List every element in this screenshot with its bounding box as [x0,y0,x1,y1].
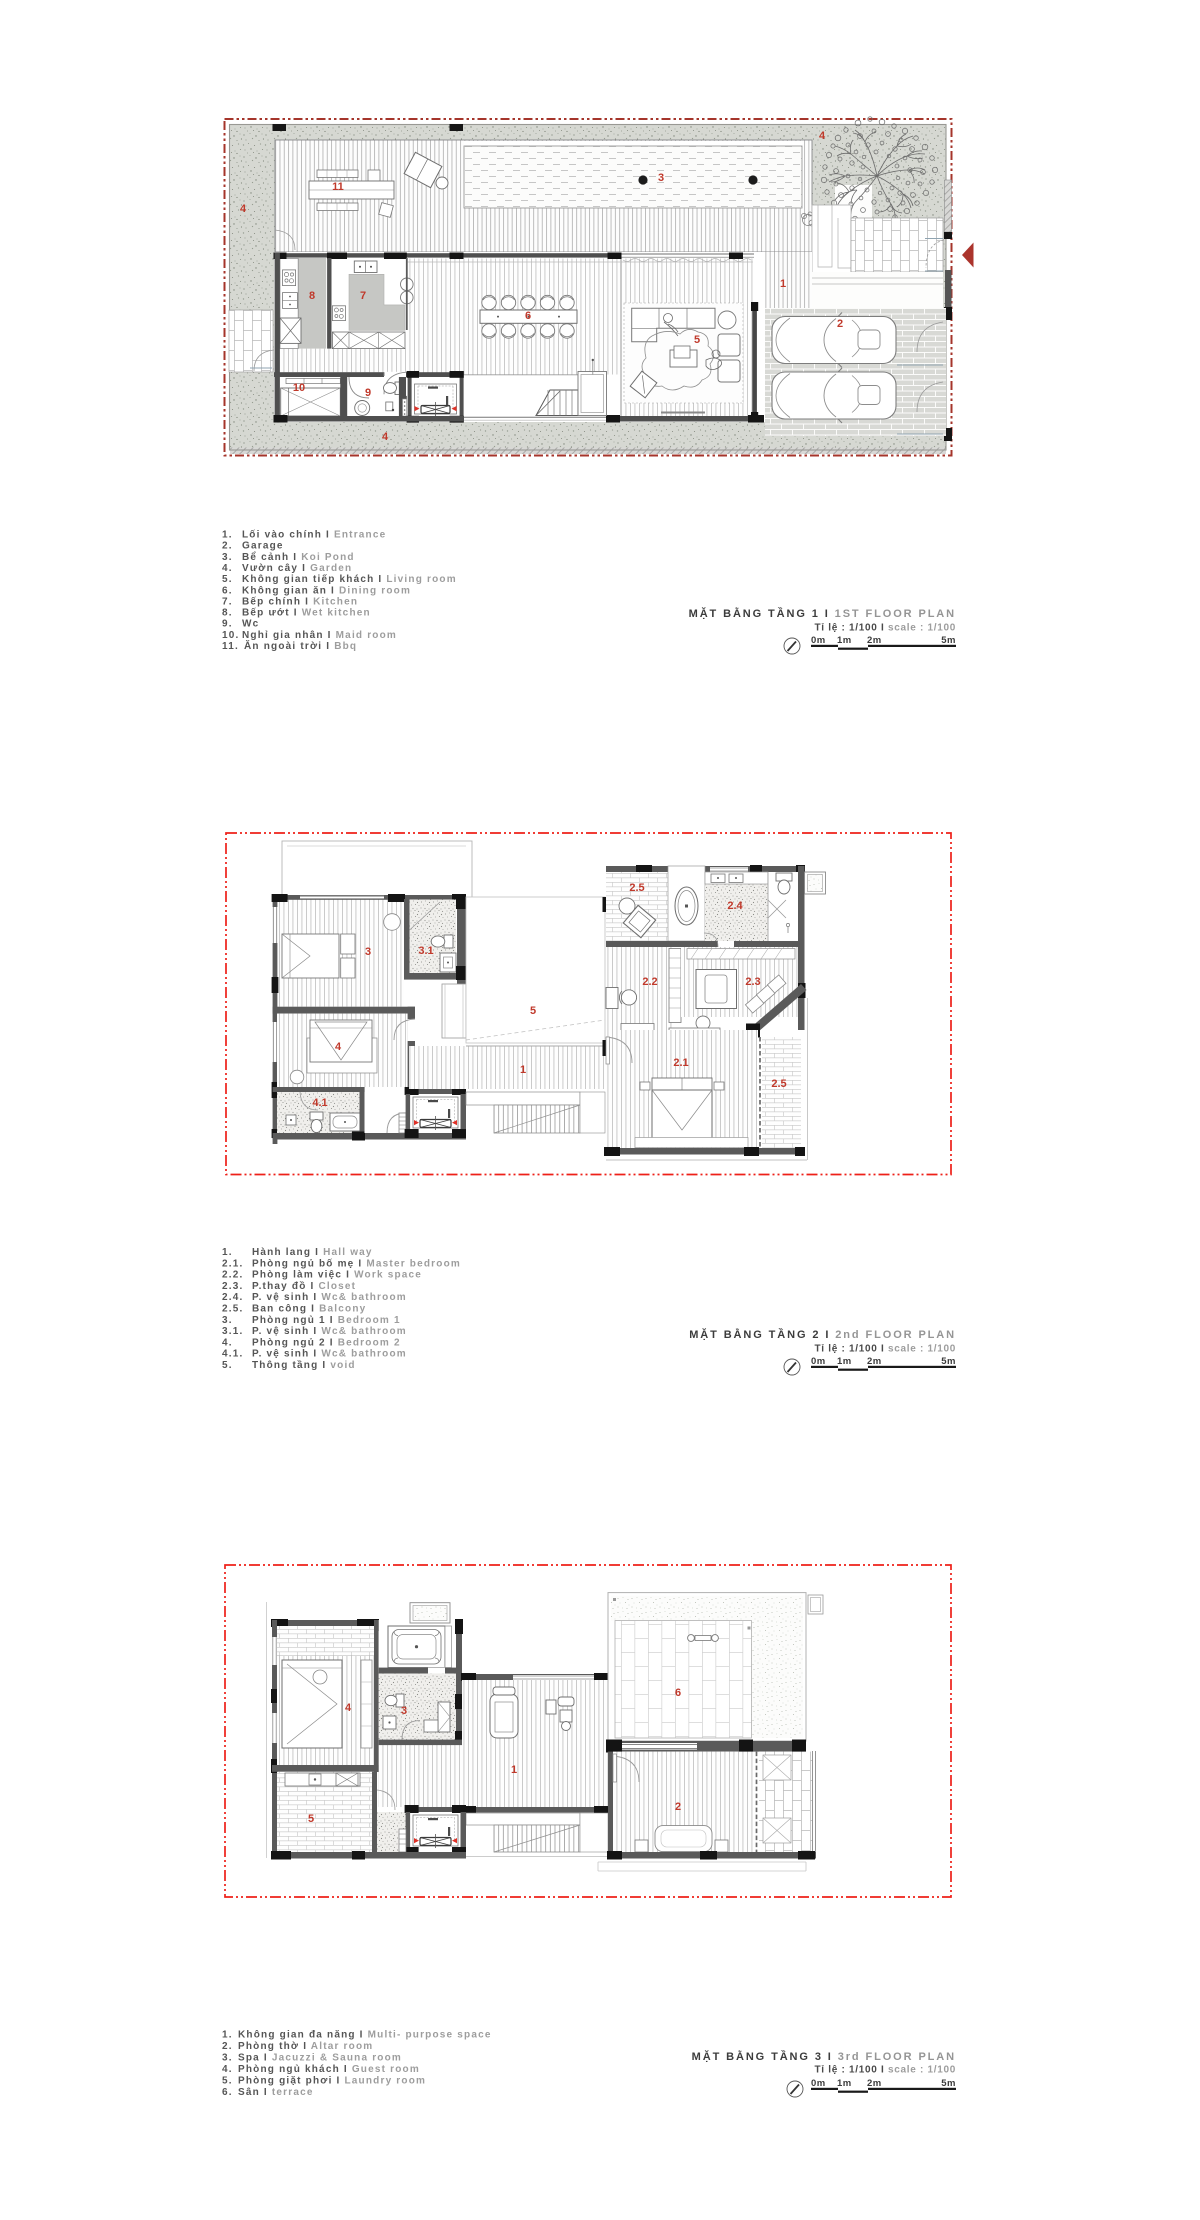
svg-text:2m: 2m [867,635,882,646]
svg-text:P. vệ sinh I Wc& bathroom: P. vệ sinh I Wc& bathroom [252,1349,407,1360]
svg-text:5m: 5m [941,1356,956,1367]
svg-text:Vườn cây I Garden: Vườn cây I Garden [242,563,352,574]
svg-text:3.: 3. [222,2053,233,2064]
svg-text:9: 9 [365,387,371,399]
svg-text:Bếp ướt I Wet kitchen: Bếp ướt I Wet kitchen [242,607,371,619]
svg-text:Không gian tiếp khách I Living: Không gian tiếp khách I Living room [242,573,457,585]
svg-text:MẶT BẰNG TẦNG 3 I 3rd FLOOR PL: MẶT BẰNG TẦNG 3 I 3rd FLOOR PLAN [692,2050,956,2063]
svg-text:3: 3 [401,1705,407,1717]
svg-text:8: 8 [309,290,315,302]
svg-text:6.: 6. [222,2087,233,2098]
svg-text:2.2: 2.2 [642,976,657,988]
svg-text:Phòng làm việc I Work space: Phòng làm việc I Work space [252,1270,422,1281]
svg-text:Garage: Garage [242,541,284,552]
svg-text:3.1: 3.1 [418,945,433,957]
svg-text:5.: 5. [222,574,233,585]
svg-text:5.: 5. [222,2076,233,2087]
svg-text:4.1: 4.1 [312,1097,327,1109]
svg-text:Phòng thờ I Altar room: Phòng thờ I Altar room [238,2041,373,2052]
svg-text:2.1: 2.1 [673,1057,688,1069]
svg-text:Wc: Wc [242,619,259,630]
svg-text:2m: 2m [867,2078,882,2089]
svg-text:2m: 2m [867,1356,882,1367]
svg-text:2: 2 [837,318,843,330]
svg-text:Tỉ lệ : 1/100 I scale : 1/100: Tỉ lệ : 1/100 I scale : 1/100 [815,623,957,634]
svg-text:1m: 1m [837,635,852,646]
svg-text:Ăn ngoài trời I Bbq: Ăn ngoài trời I Bbq [244,639,357,652]
svg-text:6: 6 [525,310,531,322]
svg-text:2.: 2. [222,2041,233,2052]
svg-text:3.: 3. [222,1315,233,1326]
svg-text:2.3.: 2.3. [222,1281,243,1292]
svg-text:5.: 5. [222,1360,233,1371]
svg-text:Sân I terrace: Sân I terrace [238,2087,314,2098]
svg-text:1.: 1. [222,1247,233,1258]
svg-text:1: 1 [780,278,786,290]
svg-text:4: 4 [382,431,389,443]
svg-text:7.: 7. [222,596,233,607]
svg-text:2.4: 2.4 [727,900,743,912]
svg-text:4.: 4. [222,2064,233,2075]
svg-text:2.5.: 2.5. [222,1304,243,1315]
svg-text:4: 4 [335,1041,342,1053]
svg-text:2.5: 2.5 [629,882,644,894]
svg-text:2: 2 [675,1801,681,1813]
svg-text:Tỉ lệ : 1/100 I scale : 1/100: Tỉ lệ : 1/100 I scale : 1/100 [815,2065,957,2076]
svg-text:6: 6 [675,1687,681,1699]
svg-text:10.: 10. [222,630,240,641]
svg-text:5m: 5m [941,2078,956,2089]
svg-text:3.: 3. [222,552,233,563]
svg-text:Không gian đa năng I Multi- pu: Không gian đa năng I Multi- purpose spac… [238,2030,492,2041]
svg-text:3: 3 [365,946,371,958]
svg-text:P.thay đồ I Closet: P.thay đồ I Closet [252,1280,356,1292]
svg-text:1.: 1. [222,530,233,541]
svg-text:Ban công I Balcony: Ban công I Balcony [252,1304,366,1315]
svg-text:Phòng ngủ khách I Guest room: Phòng ngủ khách I Guest room [238,2064,420,2075]
svg-text:2.2.: 2.2. [222,1270,243,1281]
svg-text:Hành lang I Hall way: Hành lang I Hall way [252,1247,373,1258]
svg-text:0m: 0m [811,2078,826,2089]
svg-text:MẶT BẰNG TẦNG 2 I 2nd FLOOR PL: MẶT BẰNG TẦNG 2 I 2nd FLOOR PLAN [689,1328,956,1341]
svg-text:4: 4 [819,130,826,142]
svg-text:Thông tầng I void: Thông tầng I void [252,1359,356,1371]
svg-text:Phòng ngủ bố mẹ I Master bedro: Phòng ngủ bố mẹ I Master bedroom [252,1257,461,1269]
svg-text:P. vệ sinh I Wc& bathroom: P. vệ sinh I Wc& bathroom [252,1292,407,1303]
svg-text:4.: 4. [222,1337,233,1348]
svg-text:7: 7 [360,290,366,302]
svg-text:8.: 8. [222,608,233,619]
svg-text:2.: 2. [222,541,233,552]
svg-text:2.5: 2.5 [771,1078,786,1090]
svg-text:Phòng giặt phơi I Laundry room: Phòng giặt phơi I Laundry room [238,2076,426,2087]
svg-text:1: 1 [511,1764,517,1776]
svg-text:Bếp chính I Kitchen: Bếp chính I Kitchen [242,595,358,607]
svg-text:2.3: 2.3 [745,976,760,988]
svg-text:1: 1 [520,1064,526,1076]
svg-text:1m: 1m [837,1356,852,1367]
svg-text:3: 3 [658,172,664,184]
svg-text:11: 11 [332,181,344,193]
svg-text:6.: 6. [222,585,233,596]
svg-text:Phòng ngủ 1 I Bedroom 1: Phòng ngủ 1 I Bedroom 1 [252,1315,401,1326]
svg-text:5: 5 [694,334,700,346]
svg-text:Nghỉ gia nhân I Maid room: Nghỉ gia nhân I Maid room [242,630,397,641]
svg-text:5: 5 [530,1005,536,1017]
svg-text:1m: 1m [837,2078,852,2089]
svg-text:Không gian ăn I Dining room: Không gian ăn I Dining room [242,585,411,596]
svg-text:4: 4 [240,203,247,215]
svg-text:3.1.: 3.1. [222,1326,243,1337]
svg-text:1.: 1. [222,2030,233,2041]
svg-text:Bể cảnh I Koi Pond: Bể cảnh I Koi Pond [242,551,355,563]
svg-text:0m: 0m [811,635,826,646]
svg-text:2.1.: 2.1. [222,1258,243,1269]
svg-text:0m: 0m [811,1356,826,1367]
svg-text:4.: 4. [222,563,233,574]
svg-text:4.1.: 4.1. [222,1349,243,1360]
svg-text:4: 4 [345,1702,352,1714]
svg-text:MẶT BẰNG TẦNG 1 I 1ST FLOOR PL: MẶT BẰNG TẦNG 1 I 1ST FLOOR PLAN [689,607,956,620]
svg-text:11.: 11. [222,641,239,652]
svg-text:5: 5 [308,1813,314,1825]
svg-text:Tỉ lệ : 1/100 I scale : 1/100: Tỉ lệ : 1/100 I scale : 1/100 [815,1344,957,1355]
svg-text:9.: 9. [222,619,233,630]
svg-text:Phòng ngủ 2 I Bedroom 2: Phòng ngủ 2 I Bedroom 2 [252,1337,401,1348]
svg-text:5m: 5m [941,635,956,646]
svg-text:Lối vào chính I Entrance: Lối vào chính I Entrance [242,529,386,541]
svg-text:P. vệ sinh I Wc& bathroom: P. vệ sinh I Wc& bathroom [252,1326,407,1337]
svg-text:2.4.: 2.4. [222,1292,243,1303]
svg-text:Spa I Jacuzzi & Sauna room: Spa I Jacuzzi & Sauna room [238,2053,402,2064]
svg-text:10: 10 [293,382,305,394]
